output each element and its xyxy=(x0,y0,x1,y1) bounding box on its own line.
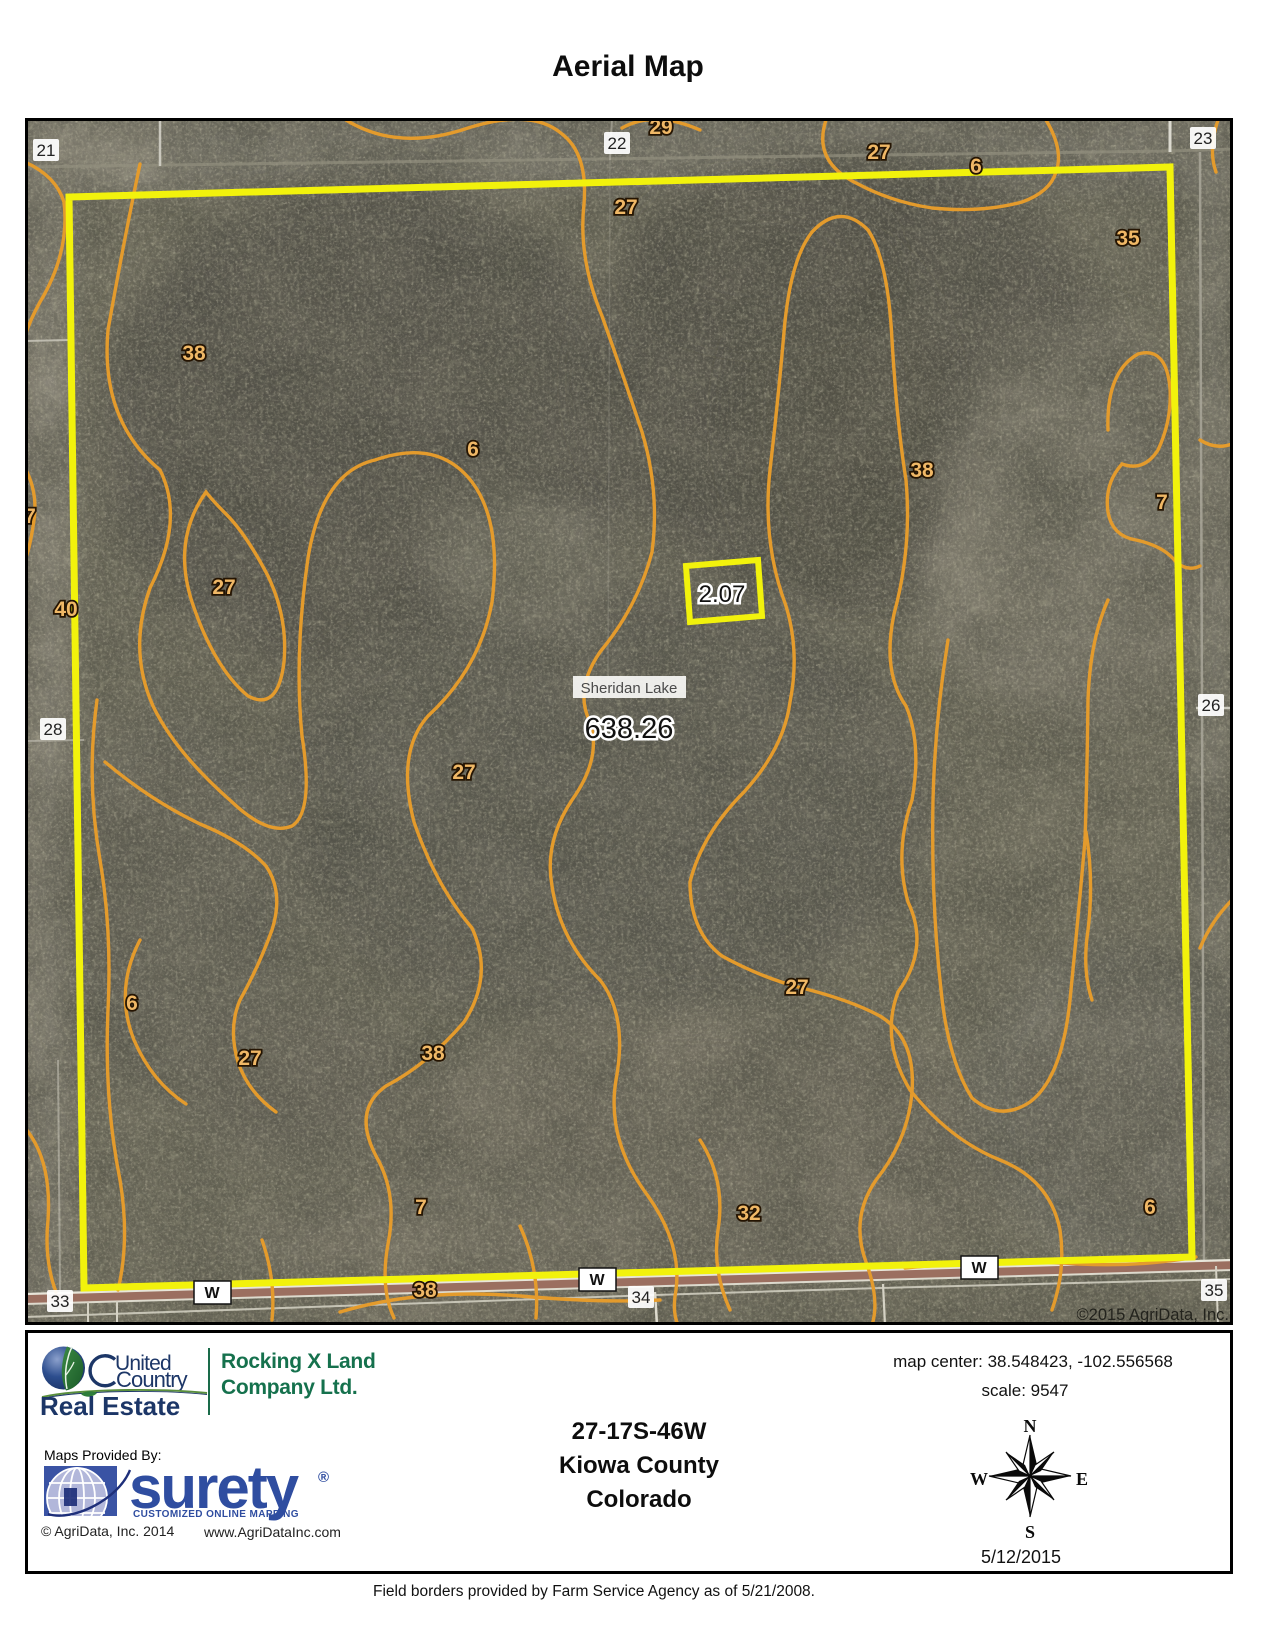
svg-text:7: 7 xyxy=(415,1196,427,1219)
svg-text:©2015 AgriData, Inc.: ©2015 AgriData, Inc. xyxy=(1077,1306,1230,1324)
svg-text:N: N xyxy=(1024,1418,1037,1436)
svg-text:638.26: 638.26 xyxy=(585,713,674,745)
svg-text:27: 27 xyxy=(785,976,808,999)
svg-text:6: 6 xyxy=(467,438,479,461)
svg-text:CUSTOMIZED ONLINE MAPPING: CUSTOMIZED ONLINE MAPPING xyxy=(133,1509,299,1520)
svg-text:S: S xyxy=(1025,1522,1035,1542)
svg-text:26: 26 xyxy=(1202,696,1221,715)
svg-text:27: 27 xyxy=(452,761,475,784)
svg-text:38: 38 xyxy=(413,1279,437,1302)
svg-text:35: 35 xyxy=(1116,227,1140,250)
svg-text:21: 21 xyxy=(37,141,56,160)
svg-text:34: 34 xyxy=(632,1288,651,1307)
svg-text:38: 38 xyxy=(421,1042,445,1065)
svg-text:40: 40 xyxy=(54,598,77,621)
svg-text:27: 27 xyxy=(867,141,890,164)
svg-text:W: W xyxy=(204,1285,220,1302)
svg-text:7: 7 xyxy=(1156,491,1168,514)
svg-text:E: E xyxy=(1076,1469,1088,1489)
svg-text:27: 27 xyxy=(238,1047,261,1070)
svg-text:27: 27 xyxy=(614,196,637,219)
svg-text:Real Estate: Real Estate xyxy=(40,1391,180,1419)
svg-text:Sheridan Lake: Sheridan Lake xyxy=(581,680,678,697)
svg-text:33: 33 xyxy=(51,1292,70,1311)
svg-text:38: 38 xyxy=(182,342,206,365)
svg-text:W: W xyxy=(970,1469,988,1489)
svg-text:W: W xyxy=(589,1272,605,1289)
svg-text:®: ® xyxy=(318,1469,329,1486)
svg-text:W: W xyxy=(971,1260,987,1277)
svg-text:29: 29 xyxy=(649,118,672,139)
svg-text:6: 6 xyxy=(126,992,138,1015)
svg-text:32: 32 xyxy=(737,1202,760,1225)
svg-text:35: 35 xyxy=(1205,1281,1224,1300)
svg-text:6: 6 xyxy=(970,155,982,178)
svg-text:23: 23 xyxy=(1194,129,1213,148)
svg-text:22: 22 xyxy=(608,134,627,153)
svg-text:Country: Country xyxy=(116,1367,188,1392)
svg-text:2.07: 2.07 xyxy=(699,581,746,608)
svg-text:6: 6 xyxy=(1144,1196,1156,1219)
svg-text:28: 28 xyxy=(44,720,63,739)
svg-text:38: 38 xyxy=(910,459,934,482)
svg-text:27: 27 xyxy=(212,576,235,599)
